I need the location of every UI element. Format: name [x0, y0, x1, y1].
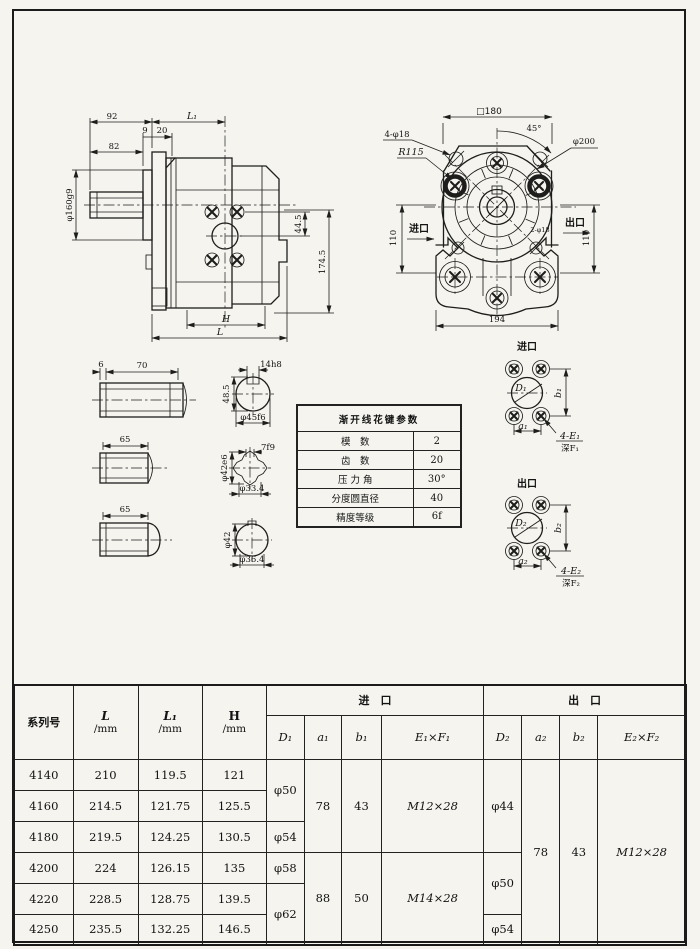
cell-D1: φ58: [266, 852, 304, 883]
inlet-label: 进口: [409, 222, 429, 235]
col-L1-unit: /mm: [139, 723, 202, 735]
spline-param-value: 40: [413, 489, 461, 508]
inlet-b1-label: b₁: [553, 388, 564, 398]
outlet-label: 出口: [565, 216, 585, 229]
spline-param-label: 模 数: [297, 432, 413, 451]
dim-9: 9: [142, 126, 147, 136]
table-header-row: 系列号 L /mm L₁ /mm H /mm 进 口 出 口: [14, 685, 686, 715]
dim-70: 70: [137, 361, 148, 371]
cell-series: 4140: [14, 759, 73, 790]
dim-2-phi18: 2-φ18: [530, 226, 549, 234]
spline-param-value: 20: [413, 451, 461, 470]
group-inlet: 进 口: [266, 685, 483, 715]
outlet-port-detail: 出口 D₂ b₂ a₂ 4-E₂ 深F₂: [506, 477, 585, 589]
key-shaft-view: 6 70: [92, 360, 196, 417]
col-a2: a₂: [522, 715, 560, 759]
cell-D2: φ50: [484, 852, 522, 914]
spline-param-label: 齿 数: [297, 451, 413, 470]
inlet-port-detail: 进口 D₁ b₁ a₁ 4-E₁ 深F₁: [506, 340, 584, 454]
dim-110-left: 110: [389, 230, 399, 246]
col-D2: D₂: [484, 715, 522, 759]
col-L-symbol: L: [74, 710, 138, 723]
cell-L: 228.5: [73, 883, 138, 914]
cell-L: 219.5: [73, 821, 138, 852]
spline-table-title: 渐开线花键参数: [297, 405, 461, 432]
dim-14h8: 14h8: [260, 360, 282, 370]
technical-drawing: 92 L₁ 9 20 82 φ160g9 44.5 174.5 H L: [0, 0, 700, 690]
dim-phi160g9: φ160g9: [65, 188, 75, 221]
col-H-symbol: H: [203, 710, 266, 723]
spline-param-label: 分度圆直径: [297, 489, 413, 508]
cell-a2: 78: [522, 759, 560, 945]
dim-92: 92: [107, 112, 118, 122]
spline-param-label: 压 力 角: [297, 470, 413, 489]
dim-phi33-4: φ33.4: [240, 484, 265, 494]
cell-L1: 128.75: [138, 883, 202, 914]
spline-param-value: 30°: [413, 470, 461, 489]
dim-45deg: 45°: [526, 124, 541, 134]
outlet-detail-title: 出口: [517, 477, 537, 490]
cell-D1: φ50: [266, 759, 304, 821]
table-row: 分度圆直径 40: [297, 489, 461, 508]
cell-E2F2: M12×28: [598, 759, 686, 945]
outlet-a2-label: a₂: [518, 556, 528, 567]
dim-82: 82: [109, 142, 120, 152]
dim-194: 194: [489, 315, 505, 325]
side-view: 92 L₁ 9 20 82 φ160g9 44.5 174.5 H L: [65, 111, 334, 342]
table-row: 精度等级 6f: [297, 508, 461, 527]
dim-6: 6: [98, 360, 103, 370]
inlet-a1-label: a₁: [518, 421, 527, 432]
dim-4-phi18: 4-φ18: [384, 130, 409, 140]
col-L1: L₁ /mm: [138, 685, 202, 759]
col-E2F2: E₂×F₂: [598, 715, 686, 759]
dim-H: H: [221, 314, 231, 325]
col-H-unit: /mm: [203, 723, 266, 735]
dim-phi200: φ200: [573, 137, 595, 147]
spline-shaft-view: 65: [92, 435, 168, 483]
outlet-b2-label: b₂: [553, 523, 564, 533]
dim-20: 20: [157, 126, 168, 136]
cell-series: 4160: [14, 790, 73, 821]
cell-D2: φ44: [484, 759, 522, 852]
inlet-holes-label: 4-E₁: [559, 431, 580, 442]
inlet-D1-label: D₁: [514, 383, 526, 394]
spline-param-label: 精度等级: [297, 508, 413, 527]
spline-param-value: 6f: [413, 508, 461, 527]
cell-D1: φ62: [266, 883, 304, 945]
col-L-unit: /mm: [74, 723, 138, 735]
cell-H: 121: [202, 759, 266, 790]
spline-param-value: 2: [413, 432, 461, 451]
cell-L: 235.5: [73, 914, 138, 945]
cell-series: 4200: [14, 852, 73, 883]
outlet-holes-label: 4-E₂: [560, 566, 581, 577]
col-L1-symbol: L₁: [139, 710, 202, 723]
table-row: 压 力 角 30°: [297, 470, 461, 489]
dim-65-plain: 65: [120, 505, 131, 515]
dim-L: L: [216, 327, 223, 338]
cell-H: 130.5: [202, 821, 266, 852]
col-series: 系列号: [14, 685, 73, 759]
series-dimension-table: 系列号 L /mm L₁ /mm H /mm 进 口 出 口 D₁ a₁ b₁ …: [13, 684, 687, 946]
dim-phi42e6: φ42e6: [220, 454, 230, 481]
plain-shaft-view: 65: [92, 505, 172, 556]
cell-H: 146.5: [202, 914, 266, 945]
col-D1: D₁: [266, 715, 304, 759]
cell-a1: 88: [304, 852, 341, 945]
dim-174-5: 174.5: [318, 250, 328, 274]
plain-shaft-section: φ42 φ36.4: [223, 518, 274, 568]
cell-L1: 119.5: [138, 759, 202, 790]
cell-L: 214.5: [73, 790, 138, 821]
cell-E1F1: M14×28: [382, 852, 484, 945]
dim-7f9: 7f9: [261, 443, 275, 453]
cell-H: 135: [202, 852, 266, 883]
dim-44-5: 44.5: [294, 215, 304, 234]
inlet-detail-title: 进口: [517, 340, 537, 353]
front-view: □180 45° φ200 4-φ18 R115 进口 出口 110 110 2…: [383, 107, 600, 331]
cell-H: 125.5: [202, 790, 266, 821]
dim-phi36-4: φ36.4: [240, 555, 265, 565]
cell-b2: 43: [560, 759, 598, 945]
cell-L1: 132.25: [138, 914, 202, 945]
col-L: L /mm: [73, 685, 138, 759]
dim-R115: R115: [397, 147, 423, 158]
cell-L: 210: [73, 759, 138, 790]
dim-phi42: φ42: [223, 532, 233, 549]
col-H: H /mm: [202, 685, 266, 759]
spline-shaft-section: 7f9 φ42e6 φ33.4: [220, 443, 275, 497]
dim-48-5: 48.5: [222, 385, 232, 404]
cell-H: 139.5: [202, 883, 266, 914]
cell-E1F1: M12×28: [382, 759, 484, 852]
table-row: 齿 数 20: [297, 451, 461, 470]
dim-65-spline: 65: [120, 435, 131, 445]
inlet-depth-label: 深F₁: [561, 444, 579, 454]
cell-D2: φ54: [484, 914, 522, 945]
cell-L1: 126.15: [138, 852, 202, 883]
dim-110-right: 110: [582, 230, 592, 246]
col-b1: b₁: [341, 715, 381, 759]
table-row: 4140 210 119.5 121 φ50 78 43 M12×28 φ44 …: [14, 759, 686, 790]
cell-L1: 124.25: [138, 821, 202, 852]
cell-a1: 78: [304, 759, 341, 852]
dim-phi45f6: φ45f6: [240, 413, 265, 423]
col-E1F1: E₁×F₁: [382, 715, 484, 759]
col-a1: a₁: [304, 715, 341, 759]
cell-series: 4250: [14, 914, 73, 945]
dim-square180: □180: [476, 107, 502, 117]
table-row: 模 数 2: [297, 432, 461, 451]
drawing-sheet: 92 L₁ 9 20 82 φ160g9 44.5 174.5 H L: [0, 0, 700, 949]
cell-D1: φ54: [266, 821, 304, 852]
cell-series: 4220: [14, 883, 73, 914]
col-b2: b₂: [560, 715, 598, 759]
cell-L1: 121.75: [138, 790, 202, 821]
cell-L: 224: [73, 852, 138, 883]
cell-series: 4180: [14, 821, 73, 852]
key-shaft-section: 14h8 48.5 φ45f6: [222, 360, 282, 427]
spline-parameter-table: 渐开线花键参数 模 数 2 齿 数 20 压 力 角 30° 分度圆直径 40 …: [296, 404, 462, 528]
dim-L1: L₁: [186, 111, 197, 122]
group-outlet: 出 口: [484, 685, 686, 715]
outlet-D2-label: D₂: [514, 518, 527, 529]
outlet-depth-label: 深F₂: [562, 579, 580, 589]
cell-b1: 43: [341, 759, 381, 852]
cell-b1: 50: [341, 852, 381, 945]
